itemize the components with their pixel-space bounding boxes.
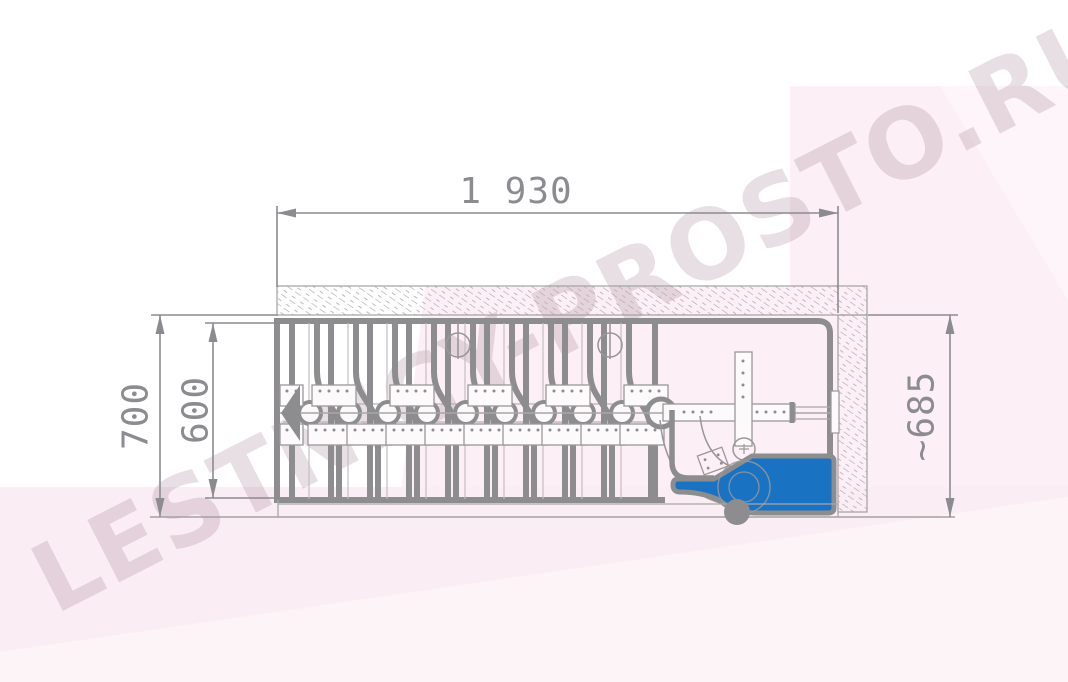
wall-hatch-top	[277, 286, 867, 315]
hinge-plate	[546, 385, 590, 406]
dimension-label-inner-height: 600	[176, 376, 217, 444]
hinge-plate	[464, 424, 508, 445]
hinge-plate	[347, 424, 391, 445]
hinge-plate	[542, 424, 586, 445]
hinge-plate	[390, 385, 434, 406]
wall-striker-plate	[831, 391, 839, 433]
hinge-plate	[468, 385, 512, 406]
dimension-label-width: 1 930	[459, 171, 572, 212]
technical-drawing: LESTNICY-PROSTO.RU	[0, 0, 1068, 682]
dimension-label-outer-height: 700	[116, 382, 157, 450]
hinge-plate	[581, 424, 625, 445]
hinge-plate	[308, 424, 352, 445]
hinge-plate	[425, 424, 469, 445]
pivot-knob	[724, 499, 750, 525]
ladder-plan-screenshot: LESTNICY-PROSTO.RU	[0, 0, 1068, 682]
hinge-plate	[312, 385, 356, 406]
hinge-plate	[503, 424, 547, 445]
vertical-latch-plate	[735, 352, 752, 446]
wall-hatch-right	[838, 315, 867, 512]
hinge-plate	[386, 424, 430, 445]
dimension-label-right-height: ~685	[902, 371, 943, 462]
